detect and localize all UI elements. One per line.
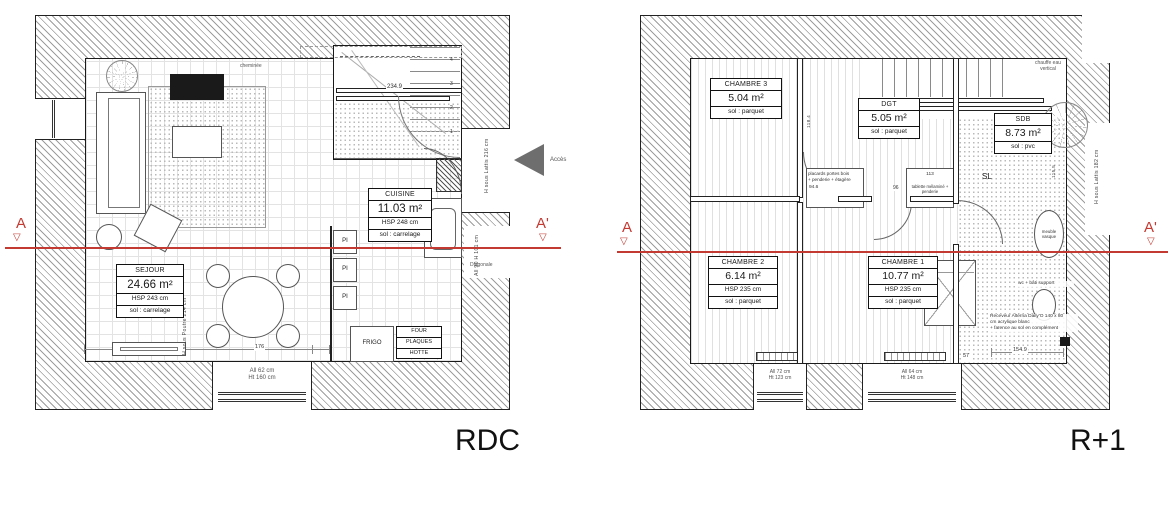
window-label-allege: All 62 cm <box>213 368 311 375</box>
washing-machine-label: SL <box>982 172 992 181</box>
dimension-value: 57 <box>962 354 970 360</box>
dimension-tick <box>1063 348 1064 357</box>
room-floor: sol : parquet <box>709 296 777 308</box>
r1-stair-handrail <box>898 106 1052 111</box>
annotation-slot <box>464 226 510 278</box>
window-label-height: Ht 160 cm <box>213 375 311 382</box>
room-name: DGT <box>859 99 919 110</box>
room-area: 5.05 m² <box>859 110 919 126</box>
partition-wall <box>690 196 800 202</box>
radiator <box>756 352 802 361</box>
r1-window-1: All 72 cm Ht 123 cm <box>753 364 807 410</box>
room-name: SEJOUR <box>117 265 183 276</box>
window-glazing-line <box>218 399 306 402</box>
wardrobe-dimension: 94.6 <box>809 185 861 191</box>
rdc-bottom-window: All 62 cm Ht 160 cm <box>212 362 312 410</box>
kitchen-sink-basin <box>430 208 456 250</box>
dimension-line <box>992 352 1064 353</box>
window-glazing-line <box>218 392 306 395</box>
window-glazing-line <box>757 392 803 395</box>
room-hsp: HSP 235 cm <box>869 284 937 296</box>
r1-top-right-notch <box>1082 15 1110 63</box>
oven-stack-box: FOUR PLAQUES HOTTE <box>396 326 442 359</box>
wardrobe-right: 113 tablette mélaminé + penderie <box>906 168 954 208</box>
vanity-label-line2: vasque <box>1042 234 1056 240</box>
dimension-tick <box>312 345 313 354</box>
access-label: Accès <box>550 157 566 164</box>
partition-wall <box>838 196 872 202</box>
room-floor: sol : pvc <box>995 141 1051 153</box>
section-marker-a-prime: A' <box>1144 220 1157 235</box>
wardrobe-left: placards portes bois + penderie + étagèr… <box>806 168 864 208</box>
water-heater-line2: vertical <box>1022 66 1074 72</box>
room-area: 6.14 m² <box>709 268 777 284</box>
section-line-a-right <box>617 251 1168 253</box>
stair-step-number: 2 <box>450 106 453 111</box>
shelf-note: tablette mélaminé + penderie <box>908 184 952 195</box>
floor-plan-canvas: 1 2 3 4 234.9 cheminée PI PI PI FRIGO FO… <box>0 0 1171 519</box>
room-hsp: HSP 248 cm <box>369 217 431 229</box>
rdc-stair-dashed-line <box>340 56 420 57</box>
coffee-table <box>172 126 222 158</box>
r1-stair-treads <box>882 59 1012 97</box>
stair-step-number: 1 <box>450 130 453 135</box>
room-area: 24.66 m² <box>117 276 183 293</box>
room-name: CUISINE <box>369 189 431 200</box>
fireplace <box>170 74 224 100</box>
dining-chair <box>276 264 300 288</box>
room-hsp: HSP 235 cm <box>709 284 777 296</box>
rdc-title: RDC <box>455 424 520 458</box>
room-floor: sol : carrelage <box>369 229 431 241</box>
chimney-label: cheminée <box>240 63 262 69</box>
access-arrow-icon <box>514 144 544 176</box>
window-label-height: Ht 148 cm <box>863 375 961 381</box>
kitchen-cupboard: PI <box>333 286 357 310</box>
window-label-height: Ht 123 cm <box>754 375 806 381</box>
room-area: 8.73 m² <box>995 125 1051 141</box>
oven-label: FOUR <box>397 327 441 337</box>
fridge: FRIGO <box>350 326 394 362</box>
partition-wall <box>910 196 958 202</box>
sdb-label-box: SDB 8.73 m² sol : pvc <box>994 113 1052 154</box>
partition-wall <box>797 58 803 198</box>
wardrobe-dimension: 113 <box>907 172 953 178</box>
sejour-label-box: SEJOUR 24.66 m² HSP 243 cm sol : carrela… <box>116 264 184 318</box>
dimension-value: 96 <box>893 185 899 191</box>
window-glazing-line <box>868 399 956 402</box>
chambre2-label-box: CHAMBRE 2 6.14 m² HSP 235 cm sol : parqu… <box>708 256 778 309</box>
rdc-left-window <box>35 98 85 140</box>
dining-chair <box>206 324 230 348</box>
room-area: 10.77 m² <box>869 268 937 284</box>
diagonale-note: Diagonale <box>470 262 493 268</box>
window-glazing-line <box>757 399 803 402</box>
chambre3-label-box: CHAMBRE 3 5.04 m² sol : parquet <box>710 78 782 119</box>
wc-label: wc + bâti support <box>1018 281 1074 287</box>
stair-step-number: 4 <box>450 58 453 63</box>
lattis-height-note: H sous Lattis 182 cm <box>1094 132 1100 204</box>
chambre1-label-box: CHAMBRE 1 10.77 m² HSP 235 cm sol : parq… <box>868 256 938 309</box>
r1-title: R+1 <box>1070 424 1126 458</box>
room-name: CHAMBRE 3 <box>711 79 781 90</box>
dimension-tick <box>84 345 85 354</box>
dining-chair <box>276 324 300 348</box>
tv-stand-inner <box>120 347 178 351</box>
room-name: SDB <box>995 114 1051 125</box>
shower-tray-note: Receveur Alterna Daily'O 140 x 80 cm acr… <box>990 314 1078 332</box>
window-glazing-line <box>52 100 55 138</box>
dimension-value: 176 <box>254 345 265 351</box>
section-marker-a-arrow-icon: ▽ <box>13 233 21 243</box>
room-name: CHAMBRE 2 <box>709 257 777 268</box>
room-floor: sol : parquet <box>711 106 781 118</box>
dining-table <box>222 276 284 338</box>
partition-wall <box>953 244 959 364</box>
section-marker-a: A <box>16 216 26 231</box>
room-floor: sol : parquet <box>869 296 937 308</box>
dimension-value-vertical: 118.4 <box>807 88 812 128</box>
water-heater-label: chauffe eau vertical <box>1022 60 1074 73</box>
kitchen-cupboard: PI <box>333 258 357 282</box>
plant-icon <box>106 60 138 92</box>
stair-dimension: 234.9 <box>386 84 403 90</box>
room-hsp: HSP 243 cm <box>117 293 183 305</box>
lattis-height-note: H sous Lattis 216 cm <box>484 133 490 193</box>
allege-note: All 90 H 101 cm <box>474 228 480 276</box>
dining-chair <box>206 264 230 288</box>
dgt-label-box: DGT 5.05 m² sol : parquet <box>858 98 920 139</box>
section-marker-a-prime-arrow-icon: ▽ <box>1147 237 1155 247</box>
dimension-value-vertical: 115.5 <box>1052 144 1057 178</box>
masonry-column <box>436 158 462 192</box>
kitchen-cupboard: PI <box>333 230 357 254</box>
cuisine-label-box: CUISINE 11.03 m² HSP 248 cm sol : carrel… <box>368 188 432 242</box>
dimension-value: 154.9 <box>1012 348 1028 354</box>
wardrobe-note-line2: + penderie + étagère <box>808 177 862 183</box>
room-name: CHAMBRE 1 <box>869 257 937 268</box>
section-marker-a-prime: A' <box>536 216 549 231</box>
room-floor: sol : parquet <box>859 126 919 138</box>
shower-note-line3: + faïence au sol en complément <box>990 326 1078 332</box>
sofa-cushions <box>108 98 140 208</box>
shower-drain <box>1060 337 1070 346</box>
radiator <box>884 352 946 361</box>
section-marker-a-prime-arrow-icon: ▽ <box>539 233 547 243</box>
partition-wall <box>797 202 803 364</box>
hood-label: HOTTE <box>397 348 441 359</box>
r1-window-2: All 64 cm Ht 148 cm <box>862 364 962 410</box>
partition-wall <box>953 58 959 204</box>
window-glazing-line <box>868 392 956 395</box>
section-line-a <box>5 247 561 249</box>
room-area: 11.03 m² <box>369 200 431 217</box>
section-marker-a: A <box>622 220 632 235</box>
hob-label: PLAQUES <box>397 337 441 348</box>
stair-step-number: 3 <box>450 82 453 87</box>
room-area: 5.04 m² <box>711 90 781 106</box>
section-marker-a-arrow-icon: ▽ <box>620 237 628 247</box>
room-floor: sol : carrelage <box>117 305 183 317</box>
dimension-tick <box>991 348 992 357</box>
